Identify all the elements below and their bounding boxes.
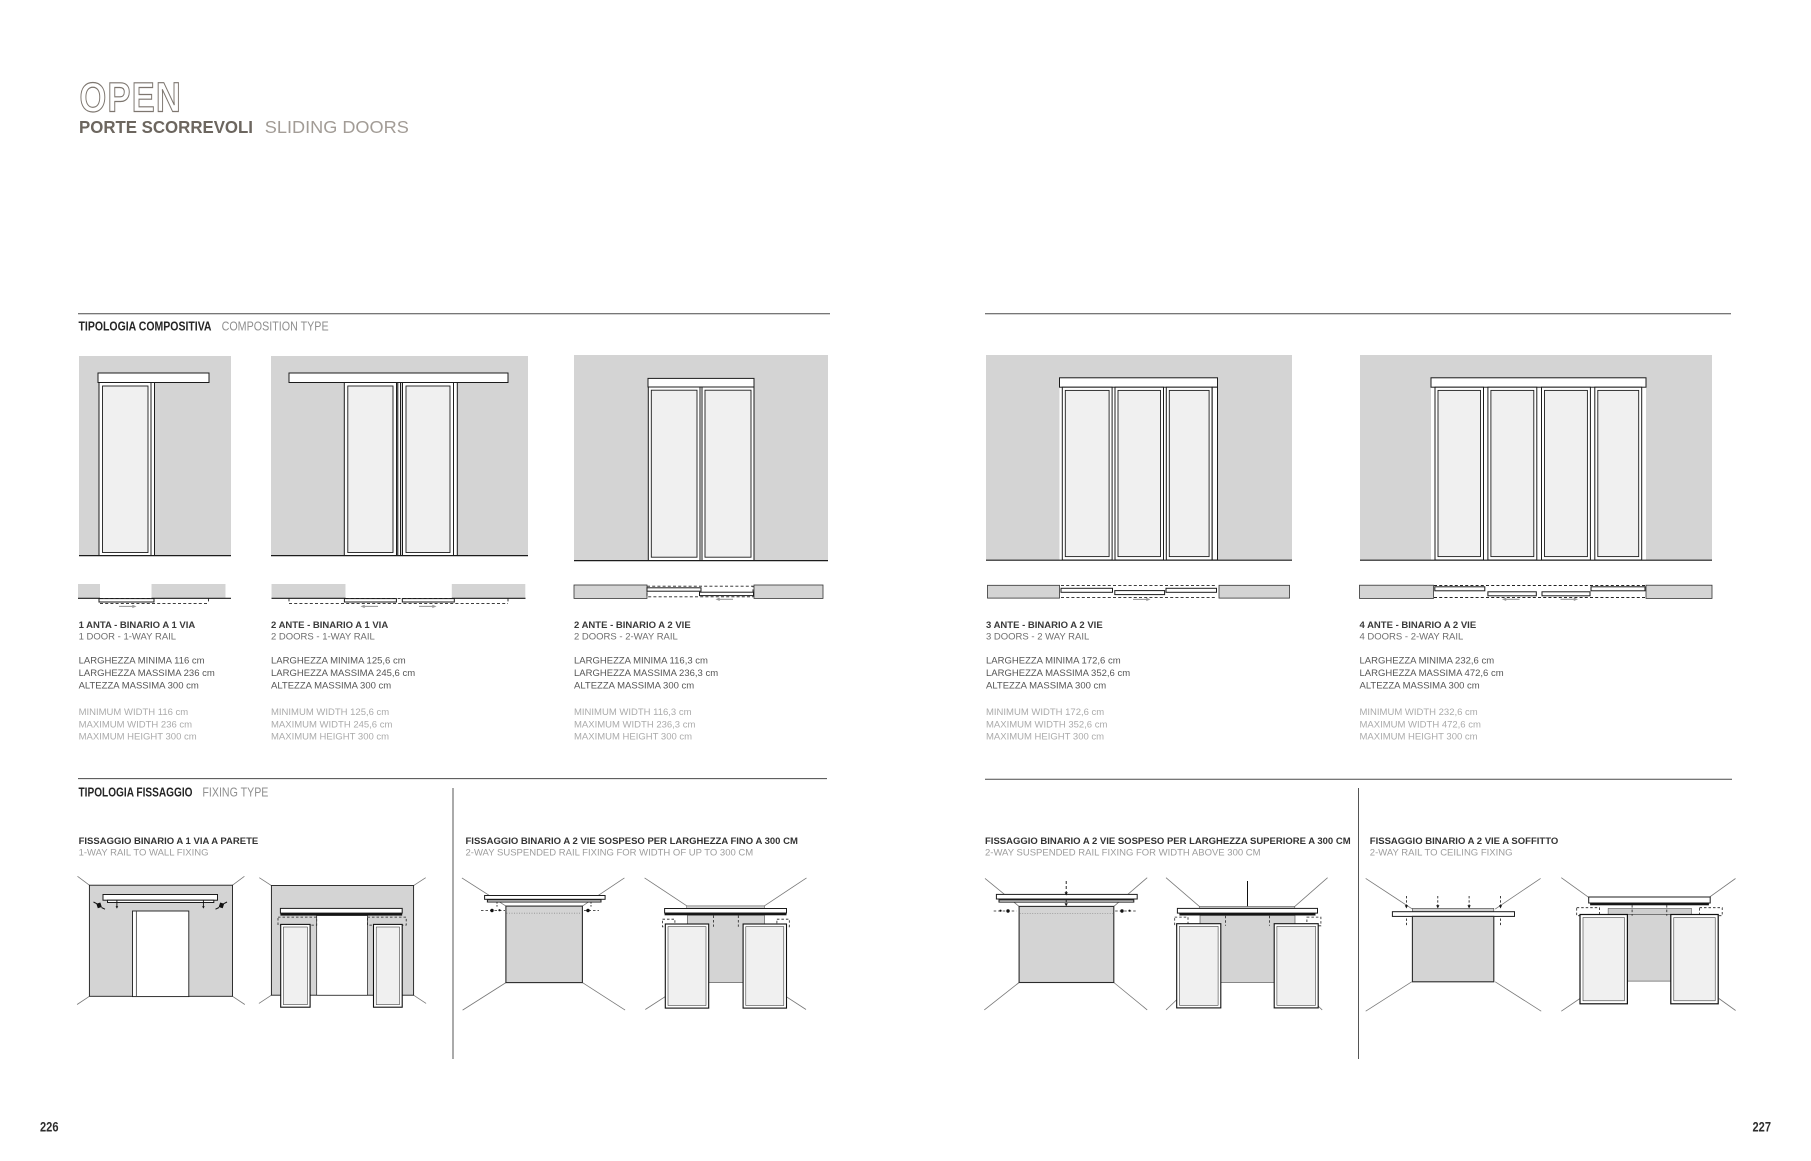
svg-text:FISSAGGIO BINARIO A 2 VIE SOSP: FISSAGGIO BINARIO A 2 VIE SOSPESO PER LA… — [466, 836, 798, 847]
svg-text:FISSAGGIO BINARIO A 1 VIA A PA: FISSAGGIO BINARIO A 1 VIA A PARETE — [79, 836, 259, 847]
svg-text:LARGHEZZA MINIMA 125,6 cm: LARGHEZZA MINIMA 125,6 cm — [271, 656, 406, 667]
svg-text:LARGHEZZA MINIMA 116 cm: LARGHEZZA MINIMA 116 cm — [79, 656, 205, 667]
svg-text:LARGHEZZA MINIMA 116,3 cm: LARGHEZZA MINIMA 116,3 cm — [574, 656, 708, 667]
svg-text:LARGHEZZA MASSIMA 236 cm: LARGHEZZA MASSIMA 236 cm — [79, 668, 215, 679]
svg-text:ALTEZZA MASSIMA 300 cm: ALTEZZA MASSIMA 300 cm — [574, 680, 694, 691]
svg-text:LARGHEZZA MINIMA 232,6 cm: LARGHEZZA MINIMA 232,6 cm — [1360, 656, 1495, 667]
svg-text:2 DOORS - 2-WAY RAIL: 2 DOORS - 2-WAY RAIL — [574, 632, 678, 643]
svg-text:2-WAY SUSPENDED RAIL FIXING FO: 2-WAY SUSPENDED RAIL FIXING FOR WIDTH AB… — [985, 847, 1261, 858]
svg-text:OPEN: OPEN — [80, 73, 183, 120]
svg-text:LARGHEZZA MASSIMA 352,6 cm: LARGHEZZA MASSIMA 352,6 cm — [986, 668, 1130, 679]
svg-text:LARGHEZZA MASSIMA 472,6 cm: LARGHEZZA MASSIMA 472,6 cm — [1360, 668, 1504, 679]
svg-text:MAXIMUM HEIGHT 300 cm: MAXIMUM HEIGHT 300 cm — [574, 732, 692, 743]
svg-text:ALTEZZA MASSIMA 300 cm: ALTEZZA MASSIMA 300 cm — [986, 680, 1106, 691]
svg-text:MAXIMUM WIDTH 245,6 cm: MAXIMUM WIDTH 245,6 cm — [271, 719, 392, 730]
svg-text:1 DOOR - 1-WAY RAIL: 1 DOOR - 1-WAY RAIL — [79, 632, 176, 643]
svg-text:MINIMUM WIDTH 172,6 cm: MINIMUM WIDTH 172,6 cm — [986, 707, 1104, 718]
svg-text:MINIMUM WIDTH 116 cm: MINIMUM WIDTH 116 cm — [79, 707, 189, 718]
svg-text:1 ANTA - BINARIO A 1 VIA: 1 ANTA - BINARIO A 1 VIA — [79, 620, 196, 631]
svg-text:MAXIMUM HEIGHT 300 cm: MAXIMUM HEIGHT 300 cm — [271, 732, 389, 743]
svg-text:MAXIMUM WIDTH 236 cm: MAXIMUM WIDTH 236 cm — [79, 719, 193, 730]
svg-text:PORTE SCORREVOLISLIDING DOORS: PORTE SCORREVOLISLIDING DOORS — [79, 117, 409, 137]
svg-text:LARGHEZZA MASSIMA 236,3 cm: LARGHEZZA MASSIMA 236,3 cm — [574, 668, 718, 679]
svg-text:MAXIMUM HEIGHT 300 cm: MAXIMUM HEIGHT 300 cm — [1360, 732, 1478, 743]
svg-text:2 ANTE - BINARIO A 1 VIA: 2 ANTE - BINARIO A 1 VIA — [271, 620, 388, 631]
svg-text:MINIMUM WIDTH 125,6 cm: MINIMUM WIDTH 125,6 cm — [271, 707, 389, 718]
svg-text:MINIMUM WIDTH 232,6 cm: MINIMUM WIDTH 232,6 cm — [1360, 707, 1478, 718]
svg-text:2 DOORS - 1-WAY RAIL: 2 DOORS - 1-WAY RAIL — [271, 632, 375, 643]
svg-text:LARGHEZZA MINIMA 172,6 cm: LARGHEZZA MINIMA 172,6 cm — [986, 656, 1121, 667]
svg-text:MINIMUM WIDTH 116,3 cm: MINIMUM WIDTH 116,3 cm — [574, 707, 692, 718]
svg-text:4 DOORS - 2-WAY RAIL: 4 DOORS - 2-WAY RAIL — [1360, 632, 1464, 643]
svg-text:FISSAGGIO BINARIO A 2 VIE SOSP: FISSAGGIO BINARIO A 2 VIE SOSPESO PER LA… — [985, 836, 1351, 847]
svg-text:ALTEZZA MASSIMA 300 cm: ALTEZZA MASSIMA 300 cm — [271, 680, 391, 691]
svg-text:MAXIMUM WIDTH 352,6 cm: MAXIMUM WIDTH 352,6 cm — [986, 719, 1107, 730]
svg-text:MAXIMUM HEIGHT 300 cm: MAXIMUM HEIGHT 300 cm — [79, 732, 197, 743]
svg-text:TIPOLOGIA FISSAGGIOFIXING TYPE: TIPOLOGIA FISSAGGIOFIXING TYPE — [79, 784, 269, 799]
svg-text:FISSAGGIO BINARIO A 2 VIE A SO: FISSAGGIO BINARIO A 2 VIE A SOFFITTO — [1370, 836, 1558, 847]
svg-text:2 ANTE - BINARIO A 2 VIE: 2 ANTE - BINARIO A 2 VIE — [574, 620, 691, 631]
svg-text:ALTEZZA MASSIMA 300 cm: ALTEZZA MASSIMA 300 cm — [79, 680, 199, 691]
svg-text:226: 226 — [40, 1119, 59, 1135]
svg-text:LARGHEZZA MASSIMA 245,6 cm: LARGHEZZA MASSIMA 245,6 cm — [271, 668, 415, 679]
svg-text:2-WAY RAIL TO CEILING FIXING: 2-WAY RAIL TO CEILING FIXING — [1370, 847, 1513, 858]
svg-text:ALTEZZA MASSIMA 300 cm: ALTEZZA MASSIMA 300 cm — [1360, 680, 1480, 691]
svg-text:3 ANTE - BINARIO A 2 VIE: 3 ANTE - BINARIO A 2 VIE — [986, 620, 1103, 631]
svg-text:MAXIMUM WIDTH 472,6 cm: MAXIMUM WIDTH 472,6 cm — [1360, 719, 1481, 730]
svg-text:227: 227 — [1753, 1119, 1772, 1135]
svg-text:2-WAY SUSPENDED RAIL FIXING FO: 2-WAY SUSPENDED RAIL FIXING FOR WIDTH OF… — [466, 847, 754, 858]
svg-text:4 ANTE - BINARIO A 2 VIE: 4 ANTE - BINARIO A 2 VIE — [1360, 620, 1477, 631]
svg-text:MAXIMUM HEIGHT 300 cm: MAXIMUM HEIGHT 300 cm — [986, 732, 1104, 743]
svg-text:MAXIMUM WIDTH 236,3 cm: MAXIMUM WIDTH 236,3 cm — [574, 719, 695, 730]
svg-text:1-WAY RAIL TO WALL FIXING: 1-WAY RAIL TO WALL FIXING — [79, 847, 209, 858]
svg-text:3 DOORS - 2 WAY RAIL: 3 DOORS - 2 WAY RAIL — [986, 632, 1089, 643]
svg-text:TIPOLOGIA COMPOSITIVACOMPOSITI: TIPOLOGIA COMPOSITIVACOMPOSITION TYPE — [79, 319, 329, 334]
